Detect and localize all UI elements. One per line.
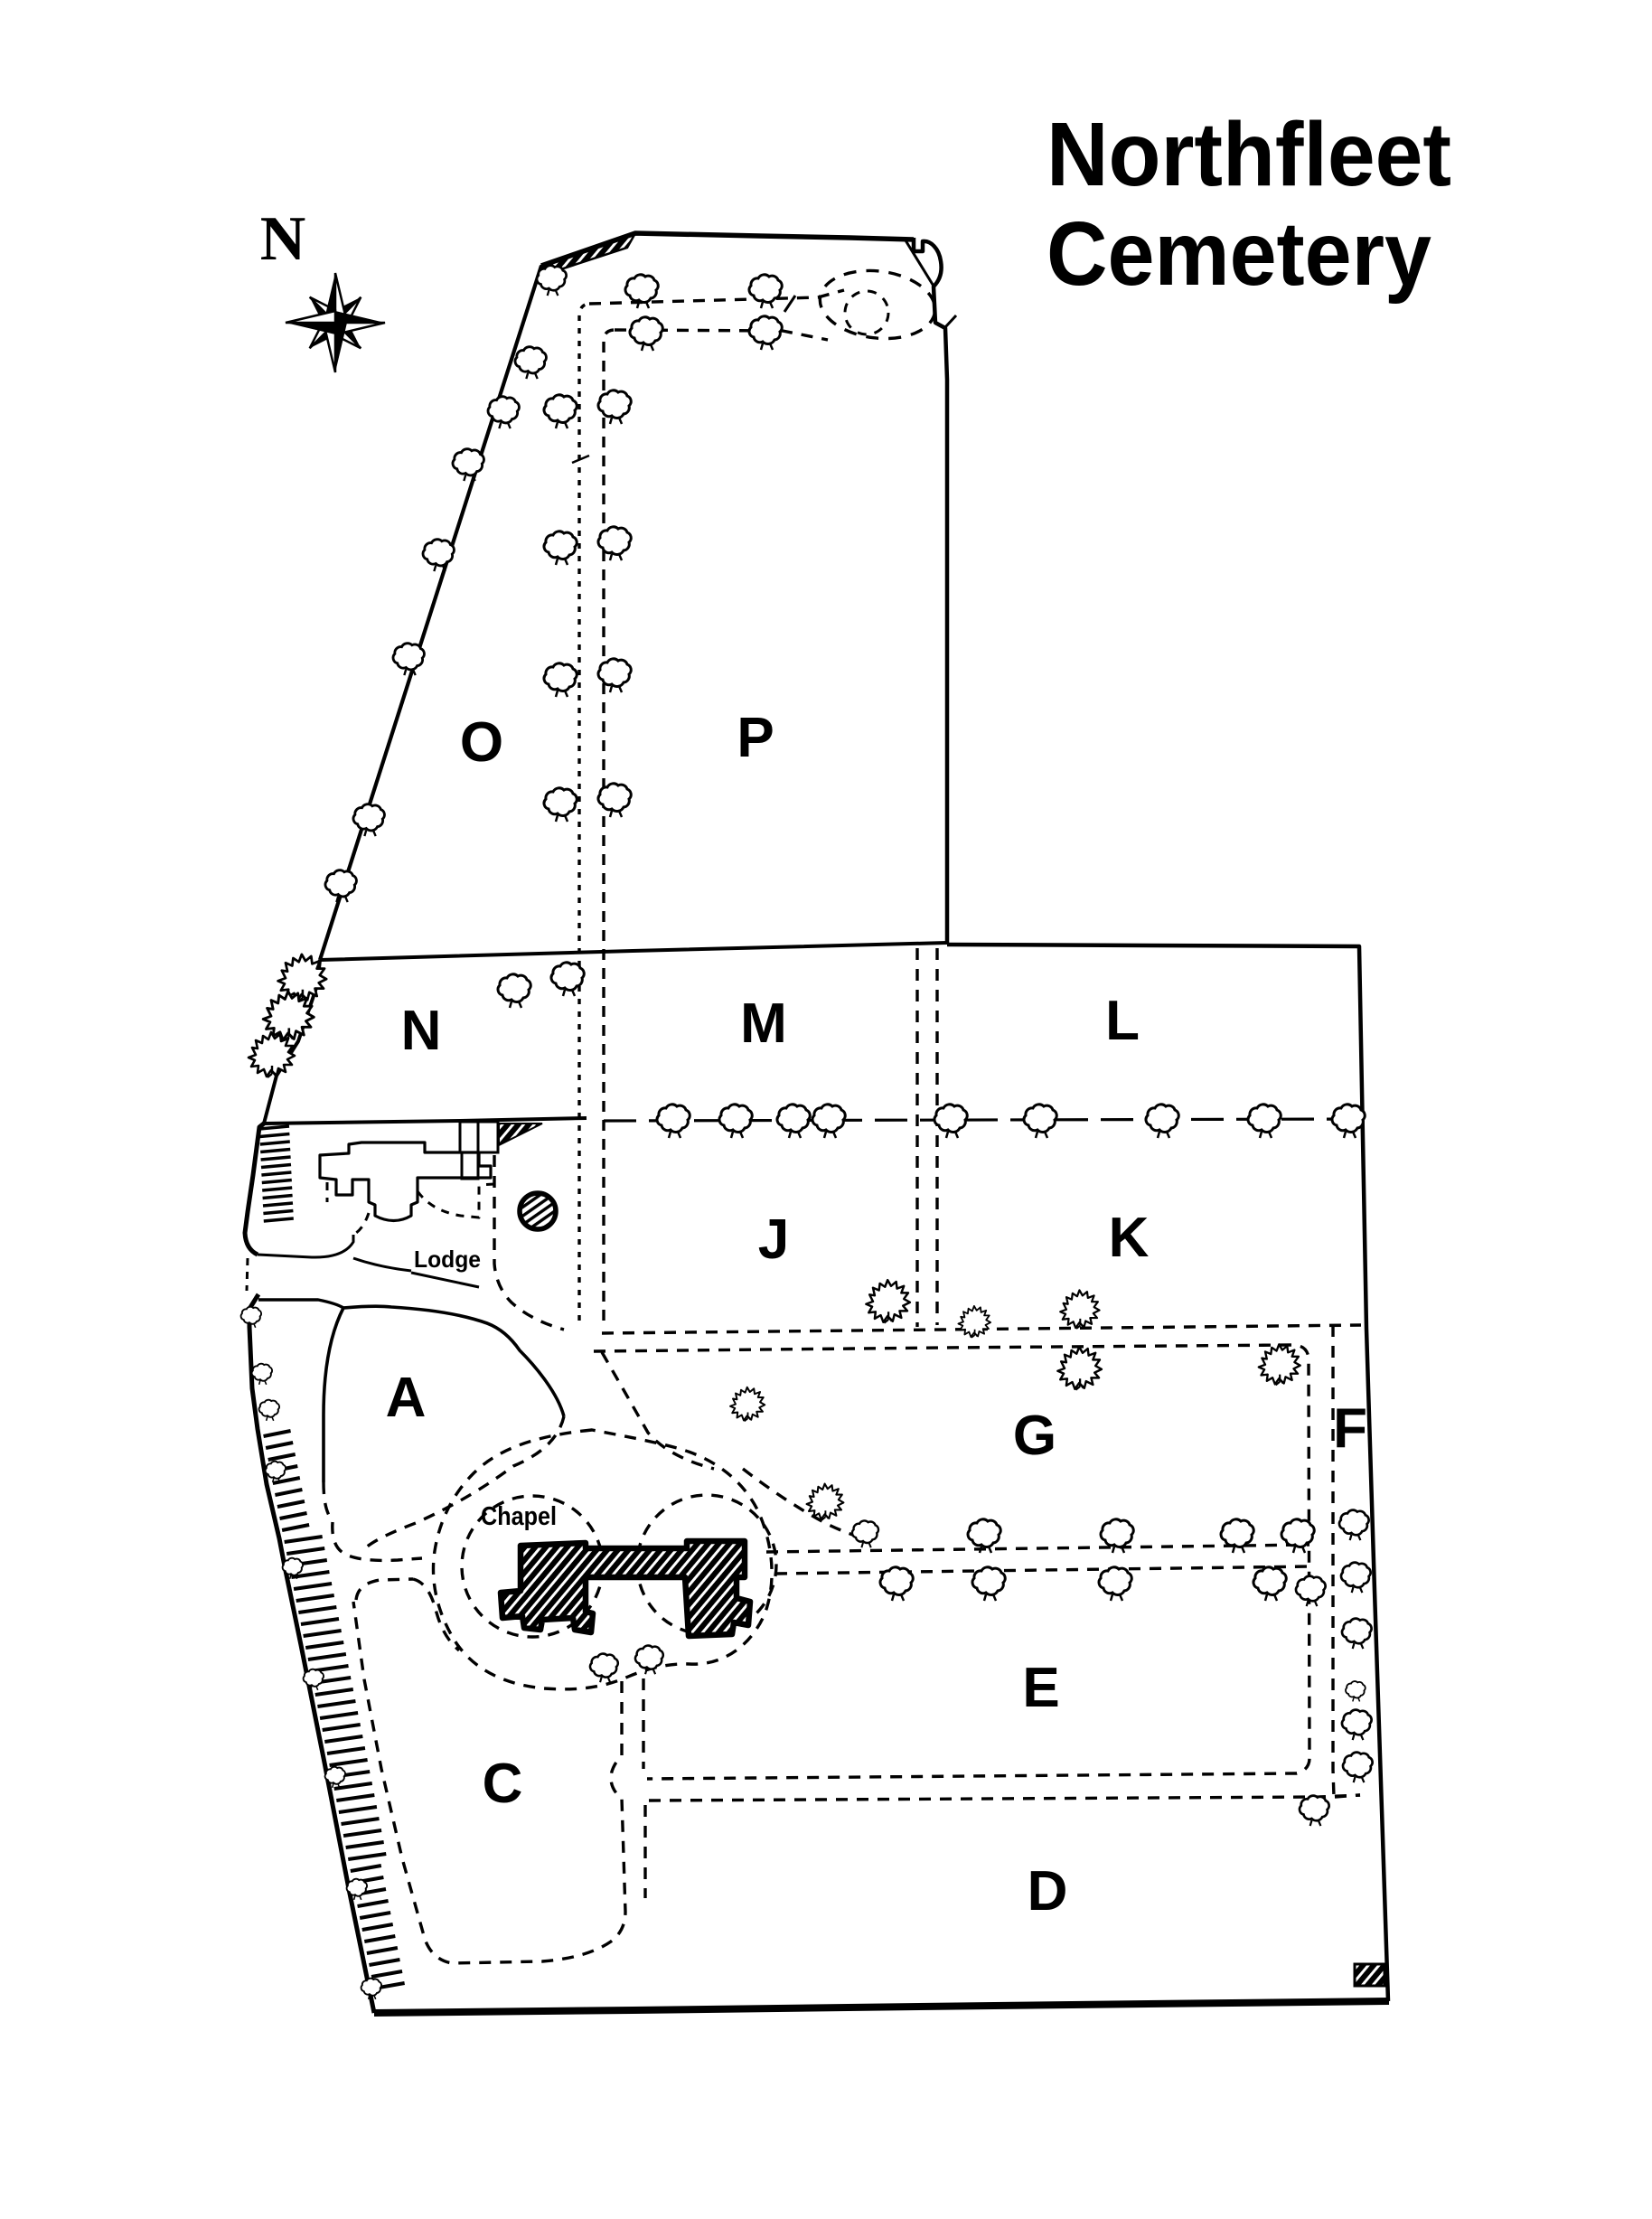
svg-text:N: N [401, 1000, 442, 1062]
svg-text:F: F [1333, 1397, 1367, 1460]
svg-text:A: A [386, 1367, 427, 1429]
svg-text:J: J [758, 1208, 789, 1271]
svg-text:L: L [1105, 990, 1140, 1052]
svg-text:K: K [1109, 1207, 1150, 1269]
svg-text:N: N [260, 204, 306, 274]
svg-text:Chapel: Chapel [481, 1502, 557, 1531]
svg-text:P: P [737, 707, 774, 769]
svg-text:M: M [740, 992, 787, 1055]
svg-text:D: D [1028, 1860, 1068, 1923]
svg-text:C: C [483, 1753, 523, 1815]
svg-text:Northfleet: Northfleet [1047, 104, 1451, 205]
svg-text:Lodge: Lodge [414, 1246, 481, 1273]
svg-text:E: E [1022, 1657, 1059, 1719]
svg-text:Cemetery: Cemetery [1047, 203, 1431, 305]
svg-text:O: O [460, 711, 503, 774]
svg-text:G: G [1013, 1405, 1056, 1467]
